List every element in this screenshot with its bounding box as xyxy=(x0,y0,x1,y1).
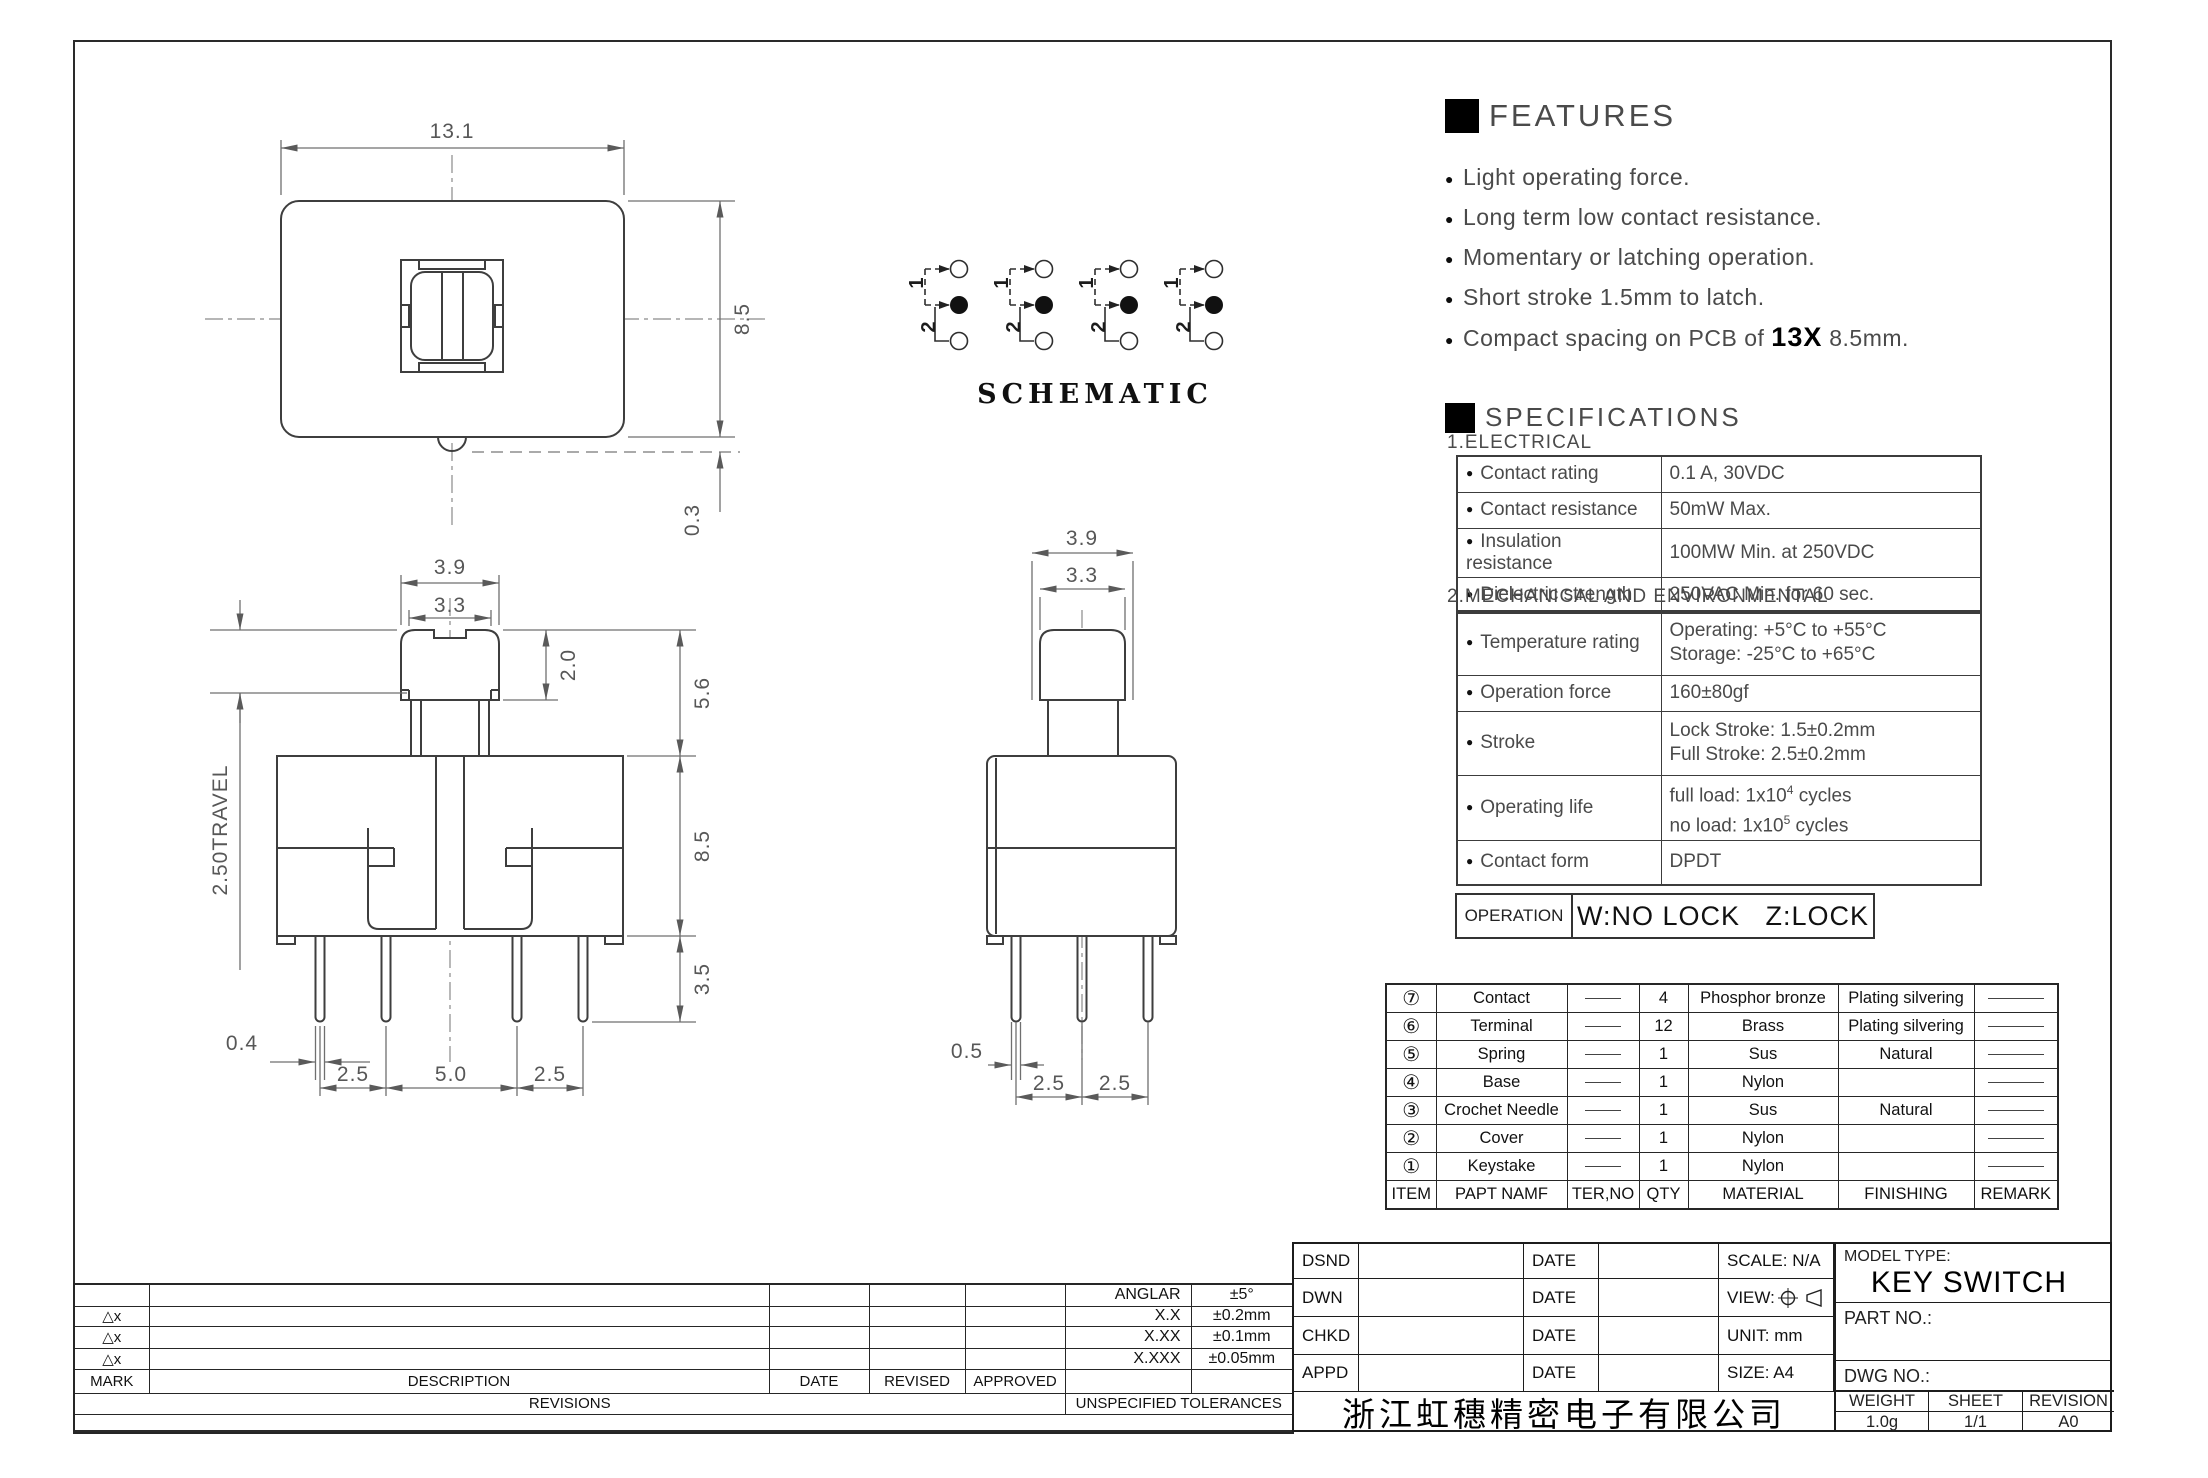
svg-text:1: 1 xyxy=(1076,277,1098,288)
table-row: ●Operating life full load: 1x104 cycles … xyxy=(1457,775,1981,841)
dim-top-width: 13.1 xyxy=(430,120,475,143)
svg-text:1: 1 xyxy=(906,277,928,288)
table-row: ②Cover1Nylon xyxy=(1386,1124,2058,1152)
mechanical-spec-table: ●Temperature rating Operating: +5°C to +… xyxy=(1456,610,1982,886)
dim-pitch-2: 5.0 xyxy=(435,1063,467,1086)
weight-label: WEIGHT xyxy=(1836,1392,1929,1412)
bullet-icon: ● xyxy=(1445,171,1454,187)
drawing-sheet: 13.1 8.5 0.3 1 2 1 2 1 2 xyxy=(0,0,2208,1478)
section-square-icon xyxy=(1445,403,1475,433)
date-label: DATE xyxy=(1524,1279,1599,1317)
model-type-value: KEY SWITCH xyxy=(1836,1266,2102,1300)
projection-view-icon xyxy=(1777,1286,1825,1310)
title-block: DSNDDATESCALE: N/A DWNDATE VIEW: CHKDDAT… xyxy=(1292,1242,2112,1432)
svg-text:2: 2 xyxy=(918,321,940,332)
dim-pitch-2: 2.5 xyxy=(1099,1072,1131,1095)
date-label: DATE xyxy=(1524,1317,1599,1355)
svg-text:1: 1 xyxy=(991,277,1013,288)
table-row: REVISIONSUNSPECIFIED TOLERANCES xyxy=(74,1393,1293,1414)
button-stem xyxy=(411,700,489,756)
bullet-icon: ● xyxy=(1445,251,1454,267)
sheet-label: SHEET xyxy=(1929,1392,2023,1412)
table-row: ⑥Terminal12BrassPlating silvering xyxy=(1386,1012,2058,1040)
specifications-title: SPECIFICATIONS xyxy=(1445,402,1742,433)
company-name: 浙江虹穗精密电子有限公司 xyxy=(1294,1392,1834,1432)
section-square-icon xyxy=(1445,99,1479,133)
dim-pitch-3: 2.5 xyxy=(534,1063,566,1086)
table-row: △xX.XXX±0.05mm xyxy=(74,1348,1293,1369)
dim-cap-top-width: 3.3 xyxy=(1066,564,1098,587)
revisions-label: REVISIONS xyxy=(74,1393,1065,1414)
bullet-icon: ● xyxy=(1445,291,1454,307)
table-row: ANGLAR±5° xyxy=(74,1284,1293,1306)
table-row: ●Contact resistance50mW Max. xyxy=(1457,492,1981,528)
model-type-box: MODEL TYPE: KEY SWITCH xyxy=(1836,1244,2112,1302)
foot-right xyxy=(1160,936,1176,944)
foot-left xyxy=(277,936,295,944)
title-block-signoff-grid: DSNDDATESCALE: N/A DWNDATE VIEW: CHKDDAT… xyxy=(1294,1244,1834,1392)
switch-body xyxy=(277,756,623,936)
weight-sheet-revision-table: WEIGHT SHEET REVISION 1.0g 1/1 A0 xyxy=(1836,1390,2114,1430)
dim-body-height: 8.5 xyxy=(691,830,714,862)
electrical-heading: 1.ELECTRICAL xyxy=(1447,432,1592,454)
feature-item: ●Short stroke 1.5mm to latch. xyxy=(1445,278,2045,318)
model-type-label: MODEL TYPE: xyxy=(1844,1248,1951,1266)
table-header-row: MARKDESCRIPTIONDATEREVISEDAPPROVED xyxy=(74,1369,1293,1393)
table-row: △xX.XX±0.1mm xyxy=(74,1326,1293,1348)
title-block-right: MODEL TYPE: KEY SWITCH PART NO.: DWG NO.… xyxy=(1834,1244,2112,1430)
table-row: ●Contact rating0.1 A, 30VDC xyxy=(1457,456,1981,492)
dwg-no-box: DWG NO.: xyxy=(1836,1360,2112,1390)
svg-text:2: 2 xyxy=(1088,321,1110,332)
table-row xyxy=(74,1414,1293,1433)
operation-label: OPERATION xyxy=(1457,895,1573,937)
dim-cap-width: 3.9 xyxy=(1066,527,1098,550)
view-cell: VIEW: xyxy=(1719,1279,1834,1317)
dim-pitch-1: 2.5 xyxy=(337,1063,369,1086)
signoff-label: CHKD xyxy=(1294,1317,1359,1355)
operation-box: OPERATION W:NO LOCK Z:LOCK xyxy=(1455,893,1875,939)
svg-text:2: 2 xyxy=(1173,321,1195,332)
foot-right xyxy=(605,936,623,944)
dim-pin-length: 3.5 xyxy=(691,963,714,995)
features-title: FEATURES xyxy=(1445,98,2045,134)
operation-value: W:NO LOCK Z:LOCK xyxy=(1573,895,1873,937)
mechanical-heading: 2.MECHANICAL AND ENVIRONMENTAL xyxy=(1447,586,1829,608)
sheet-value: 1/1 xyxy=(1929,1412,2023,1432)
bullet-icon: ● xyxy=(1445,332,1454,348)
dim-top-height: 8.5 xyxy=(731,303,754,335)
revision-value: A0 xyxy=(2023,1412,2114,1432)
table-row: ⑤Spring1SusNatural xyxy=(1386,1040,2058,1068)
feature-item: ●Compact spacing on PCB of 13X 8.5mm. xyxy=(1445,318,2045,359)
features-section: FEATURES ●Light operating force. ●Long t… xyxy=(1445,98,2045,359)
signoff-label: DWN xyxy=(1294,1279,1359,1317)
terminal-pins xyxy=(316,936,588,1022)
revisions-tolerance-table: ANGLAR±5° △xX.X±0.2mm △xX.XX±0.1mm △xX.X… xyxy=(73,1283,1294,1434)
table-row: ④Base1Nylon xyxy=(1386,1068,2058,1096)
dim-pitch-1: 2.5 xyxy=(1033,1072,1065,1095)
svg-text:1: 1 xyxy=(1161,277,1183,288)
date-label: DATE xyxy=(1524,1244,1599,1279)
dim-cap-height: 2.0 xyxy=(557,649,580,681)
dim-pin-width: 0.4 xyxy=(226,1032,258,1055)
button-stem xyxy=(1048,700,1118,756)
table-row: ●Stroke Lock Stroke: 1.5±0.2mmFull Strok… xyxy=(1457,711,1981,775)
schematic-diagram: 1 2 1 2 1 2 1 2 SCHEMATIC xyxy=(895,235,1275,450)
dim-cap-top-width: 3.3 xyxy=(434,594,466,617)
unspecified-tolerances-label: UNSPECIFIED TOLERANCES xyxy=(1065,1393,1293,1414)
schematic-unit: 1 2 xyxy=(991,261,1053,350)
table-row: △xX.X±0.2mm xyxy=(74,1306,1293,1326)
feature-item: ●Long term low contact resistance. xyxy=(1445,198,2045,238)
unit-label: UNIT: mm xyxy=(1719,1317,1834,1355)
scale-label: SCALE: N/A xyxy=(1719,1244,1834,1279)
table-row: ●Operation force 160±80gf xyxy=(1457,675,1981,711)
dim-upper-height: 5.6 xyxy=(691,677,714,709)
switch-body xyxy=(987,756,1176,936)
size-label: SIZE: A4 xyxy=(1719,1355,1834,1392)
bullet-icon: ● xyxy=(1445,211,1454,227)
switch-body-outline xyxy=(281,201,624,437)
table-row: ●Insulation resistance100MW Min. at 250V… xyxy=(1457,528,1981,577)
svg-text:2: 2 xyxy=(1003,321,1025,332)
dim-pin-width: 0.5 xyxy=(951,1040,983,1063)
schematic-unit: 1 2 xyxy=(906,261,968,350)
schematic-unit: 1 2 xyxy=(1161,261,1223,350)
button-cap xyxy=(401,630,499,700)
schematic-unit: 1 2 xyxy=(1076,261,1138,350)
parts-table: ⑦Contact4Phosphor bronzePlating silverin… xyxy=(1385,983,2059,1210)
date-label: DATE xyxy=(1524,1355,1599,1392)
schematic-label: SCHEMATIC xyxy=(977,379,1213,410)
feature-item: ●Momentary or latching operation. xyxy=(1445,238,2045,278)
foot-left xyxy=(987,936,1003,944)
table-row: ●Temperature rating Operating: +5°C to +… xyxy=(1457,611,1981,675)
part-no-box: PART NO.: xyxy=(1836,1302,2112,1360)
dim-top-offset: 0.3 xyxy=(681,504,704,536)
signoff-label: DSND xyxy=(1294,1244,1359,1279)
table-row: ①Keystake1Nylon xyxy=(1386,1152,2058,1180)
table-row: ⑦Contact4Phosphor bronzePlating silverin… xyxy=(1386,984,2058,1012)
signoff-label: APPD xyxy=(1294,1355,1359,1392)
table-row: ③Crochet Needle1SusNatural xyxy=(1386,1096,2058,1124)
table-header-row: ITEMPAPT NAMFTER,NOQTYMATERIALFINISHINGR… xyxy=(1386,1180,2058,1209)
dim-travel: 2.50TRAVEL xyxy=(209,764,232,895)
button-cap xyxy=(1040,630,1125,700)
feature-item: ●Light operating force. xyxy=(1445,158,2045,198)
side-view-drawing: 3.9 3.3 0.5 2.5 2.5 xyxy=(940,505,1270,1130)
top-view-drawing: 13.1 8.5 0.3 xyxy=(180,100,780,570)
front-view-drawing: 3.9 3.3 2.0 5.6 8.5 3.5 2.50TRAVEL 0.4 2… xyxy=(140,540,720,1120)
dim-cap-width: 3.9 xyxy=(434,556,466,579)
weight-value: 1.0g xyxy=(1836,1412,1929,1432)
table-row: ●Contact form DPDT xyxy=(1457,841,1981,885)
revision-label: REVISION xyxy=(2023,1392,2114,1412)
